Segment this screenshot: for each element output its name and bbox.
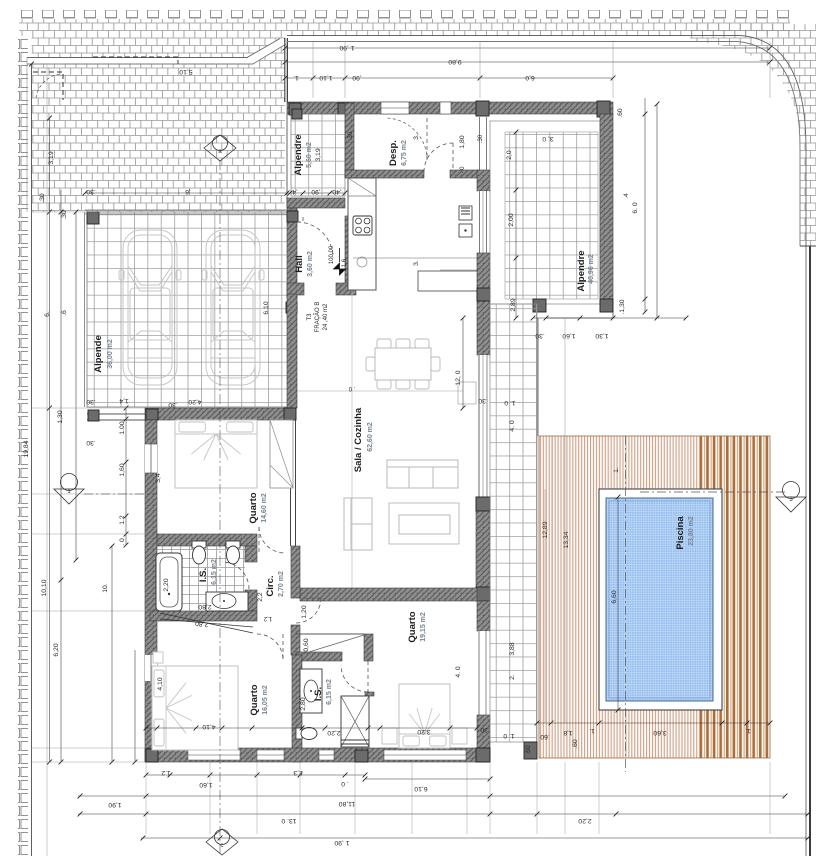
svg-text:. 0: . 0 <box>119 538 126 546</box>
svg-text:,90: ,90 <box>311 188 321 195</box>
svg-text:12, 0: 12, 0 <box>455 370 462 385</box>
svg-text:.4: .4 <box>623 193 630 199</box>
svg-text:62,60 m2: 62,60 m2 <box>367 422 374 452</box>
svg-text:1,30: 1,30 <box>595 332 608 339</box>
svg-text:40,96 m2: 40,96 m2 <box>588 254 595 284</box>
svg-text:4,10: 4,10 <box>157 677 164 690</box>
svg-text:1,90: 1,90 <box>108 801 121 808</box>
svg-text:3,60: 3,60 <box>653 729 666 736</box>
svg-text:3, 0: 3, 0 <box>542 135 554 142</box>
svg-text:.30: .30 <box>86 398 96 405</box>
svg-text:1.: 1. <box>293 74 299 81</box>
svg-text:,4: ,4 <box>292 188 298 195</box>
svg-text:6,15 m2: 6,15 m2 <box>211 559 218 585</box>
svg-text:1,2: 1,2 <box>263 615 272 621</box>
svg-text:.30: .30 <box>348 131 354 140</box>
svg-text:Circ.: Circ. <box>265 575 276 596</box>
svg-text:.60: .60 <box>572 739 579 749</box>
svg-text:3,88: 3,88 <box>509 642 516 655</box>
svg-text:I.S.: I.S. <box>198 568 209 582</box>
svg-text:1.2: 1.2 <box>119 515 126 525</box>
svg-text:Hall: Hall <box>294 255 305 272</box>
svg-text:5,60 m2: 5,60 m2 <box>306 142 313 168</box>
svg-text:6,15 m2: 6,15 m2 <box>326 679 333 705</box>
svg-text:4. 0: 4. 0 <box>509 420 516 432</box>
svg-text:0,60: 0,60 <box>303 638 310 651</box>
svg-text:.30: .30 <box>86 439 96 446</box>
svg-text:3,4: 3,4 <box>155 473 162 483</box>
svg-text:13,34: 13,34 <box>563 531 570 548</box>
svg-text:1,20: 1,20 <box>301 605 308 618</box>
svg-text:.30: .30 <box>535 332 545 339</box>
svg-text:23,80 m2: 23,80 m2 <box>688 516 695 546</box>
svg-text:14,60 m2: 14,60 m2 <box>261 493 268 523</box>
svg-text:,90: ,90 <box>352 74 362 81</box>
svg-text:9,80: 9,80 <box>448 58 461 65</box>
svg-text:.30: .30 <box>61 210 68 220</box>
svg-text:,6: ,6 <box>185 188 191 195</box>
svg-text:10,10: 10,10 <box>41 579 48 596</box>
svg-text:1,80: 1,80 <box>459 135 466 148</box>
svg-text:2,20: 2,20 <box>163 578 170 591</box>
svg-text:3.: 3. <box>413 134 420 140</box>
svg-text:Alpendre: Alpendre <box>576 250 587 291</box>
svg-text:2,70 m2: 2,70 m2 <box>278 571 285 597</box>
svg-text:1.: 1. <box>613 467 620 473</box>
svg-text:- 0: - 0 <box>460 166 466 174</box>
svg-text:c: c <box>221 843 224 849</box>
svg-text:1 ,90: 1 ,90 <box>339 44 354 51</box>
svg-text:I.S.: I.S. <box>313 687 324 701</box>
svg-text:5,10: 5,10 <box>179 68 192 75</box>
svg-text:100,00: 100,00 <box>329 245 335 264</box>
svg-text:13. 0: 13. 0 <box>281 817 296 824</box>
svg-text:6,75 m2: 6,75 m2 <box>401 140 408 166</box>
svg-text:Alpendre: Alpendre <box>293 134 304 175</box>
svg-text:2,80: 2,80 <box>300 697 307 710</box>
svg-text:1,30: 1,30 <box>57 410 64 423</box>
svg-text:6.: 6. <box>44 311 51 317</box>
svg-text:1 ,90: 1 ,90 <box>334 839 349 846</box>
svg-text:2,00: 2,00 <box>508 213 515 226</box>
svg-text:T3: T3 <box>307 313 313 321</box>
svg-text:19,15 m2: 19,15 m2 <box>420 612 427 642</box>
svg-text:FRAÇÃO B: FRAÇÃO B <box>314 302 321 333</box>
svg-text:2.: 2. <box>509 674 516 680</box>
svg-text:.60: .60 <box>617 108 624 118</box>
svg-text:2,3: 2,3 <box>293 769 303 776</box>
svg-text:. 0: . 0 <box>348 385 355 391</box>
svg-text:.30: .30 <box>478 397 488 404</box>
svg-text:Piscina: Piscina <box>675 516 686 550</box>
svg-text:1.00: 1.00 <box>119 421 126 434</box>
svg-text:Desp.: Desp. <box>388 140 399 166</box>
svg-text:. 0: . 0 <box>341 780 349 787</box>
svg-text:Quarto: Quarto <box>248 492 259 523</box>
svg-text:6,0: 6,0 <box>525 74 535 81</box>
svg-text:6. 0: 6. 0 <box>632 202 639 214</box>
svg-text:1.: 1. <box>745 727 751 734</box>
svg-text:.30: .30 <box>39 193 46 203</box>
svg-text:4. 0: 4. 0 <box>455 666 462 678</box>
svg-text:1,10: 1,10 <box>319 74 332 81</box>
svg-text:2,80: 2,80 <box>198 603 211 610</box>
svg-text:1,8: 1,8 <box>563 729 573 736</box>
svg-text:.30: .30 <box>168 401 178 408</box>
svg-text:1. 0: 1. 0 <box>504 399 516 406</box>
svg-text:.30: .30 <box>478 134 484 143</box>
svg-text:1,60: 1,60 <box>119 463 126 476</box>
svg-text:1,60: 1,60 <box>562 332 575 339</box>
svg-text:Quarto: Quarto <box>249 684 260 715</box>
svg-text:19,84: 19,84 <box>23 440 30 457</box>
svg-text:Sala / Cozinha: Sala / Cozinha <box>353 407 364 472</box>
svg-text:.30: .30 <box>86 188 96 195</box>
svg-text:4,10: 4,10 <box>202 723 215 730</box>
svg-text:16,05 m2: 16,05 m2 <box>262 685 269 715</box>
svg-text:,40: ,40 <box>332 188 342 195</box>
svg-text:10.: 10. <box>102 583 109 593</box>
svg-text:1. 0: 1. 0 <box>503 732 515 739</box>
svg-text:12,89: 12,89 <box>542 521 549 538</box>
svg-text:2,20: 2,20 <box>327 729 340 736</box>
svg-text:3.: 3. <box>413 260 420 266</box>
svg-text:6,20: 6,20 <box>53 643 60 656</box>
svg-text:4,20: 4,20 <box>188 398 201 405</box>
svg-text:36,00 m2: 36,00 m2 <box>107 339 114 369</box>
svg-text:2,0: 2,0 <box>506 150 513 160</box>
svg-text:3,60 m2: 3,60 m2 <box>307 251 314 277</box>
svg-text:6,60: 6,60 <box>611 590 618 603</box>
svg-text:6,10: 6,10 <box>414 785 427 792</box>
svg-text:Quarto: Quarto <box>407 611 418 642</box>
svg-text:.60: .60 <box>525 745 532 755</box>
svg-text:.1,30: .1,30 <box>619 299 626 314</box>
svg-text:2,89: 2,89 <box>510 298 517 311</box>
svg-text:11,80: 11,80 <box>339 800 356 807</box>
svg-text:.30: .30 <box>480 726 490 733</box>
svg-text:1,60: 1,60 <box>199 781 212 788</box>
svg-text:1.: 1. <box>589 727 595 734</box>
svg-text:6.10: 6.10 <box>263 301 270 314</box>
svg-text:Alpende: Alpende <box>93 335 104 372</box>
svg-text:24 ,40 m2: 24 ,40 m2 <box>323 303 329 330</box>
svg-text:3,19: 3,19 <box>315 148 322 161</box>
svg-text:3,19: 3,19 <box>48 151 55 164</box>
svg-text:.60: .60 <box>540 733 550 740</box>
svg-text:2,2: 2,2 <box>257 592 264 602</box>
svg-text:2,20: 2,20 <box>578 817 591 824</box>
svg-text:3,20: 3,20 <box>417 728 430 735</box>
svg-text:.6: .6 <box>61 310 68 316</box>
svg-text:1,4: 1,4 <box>119 397 129 404</box>
svg-text:1,6: 1,6 <box>342 258 348 267</box>
svg-text:1.2: 1.2 <box>161 769 171 776</box>
